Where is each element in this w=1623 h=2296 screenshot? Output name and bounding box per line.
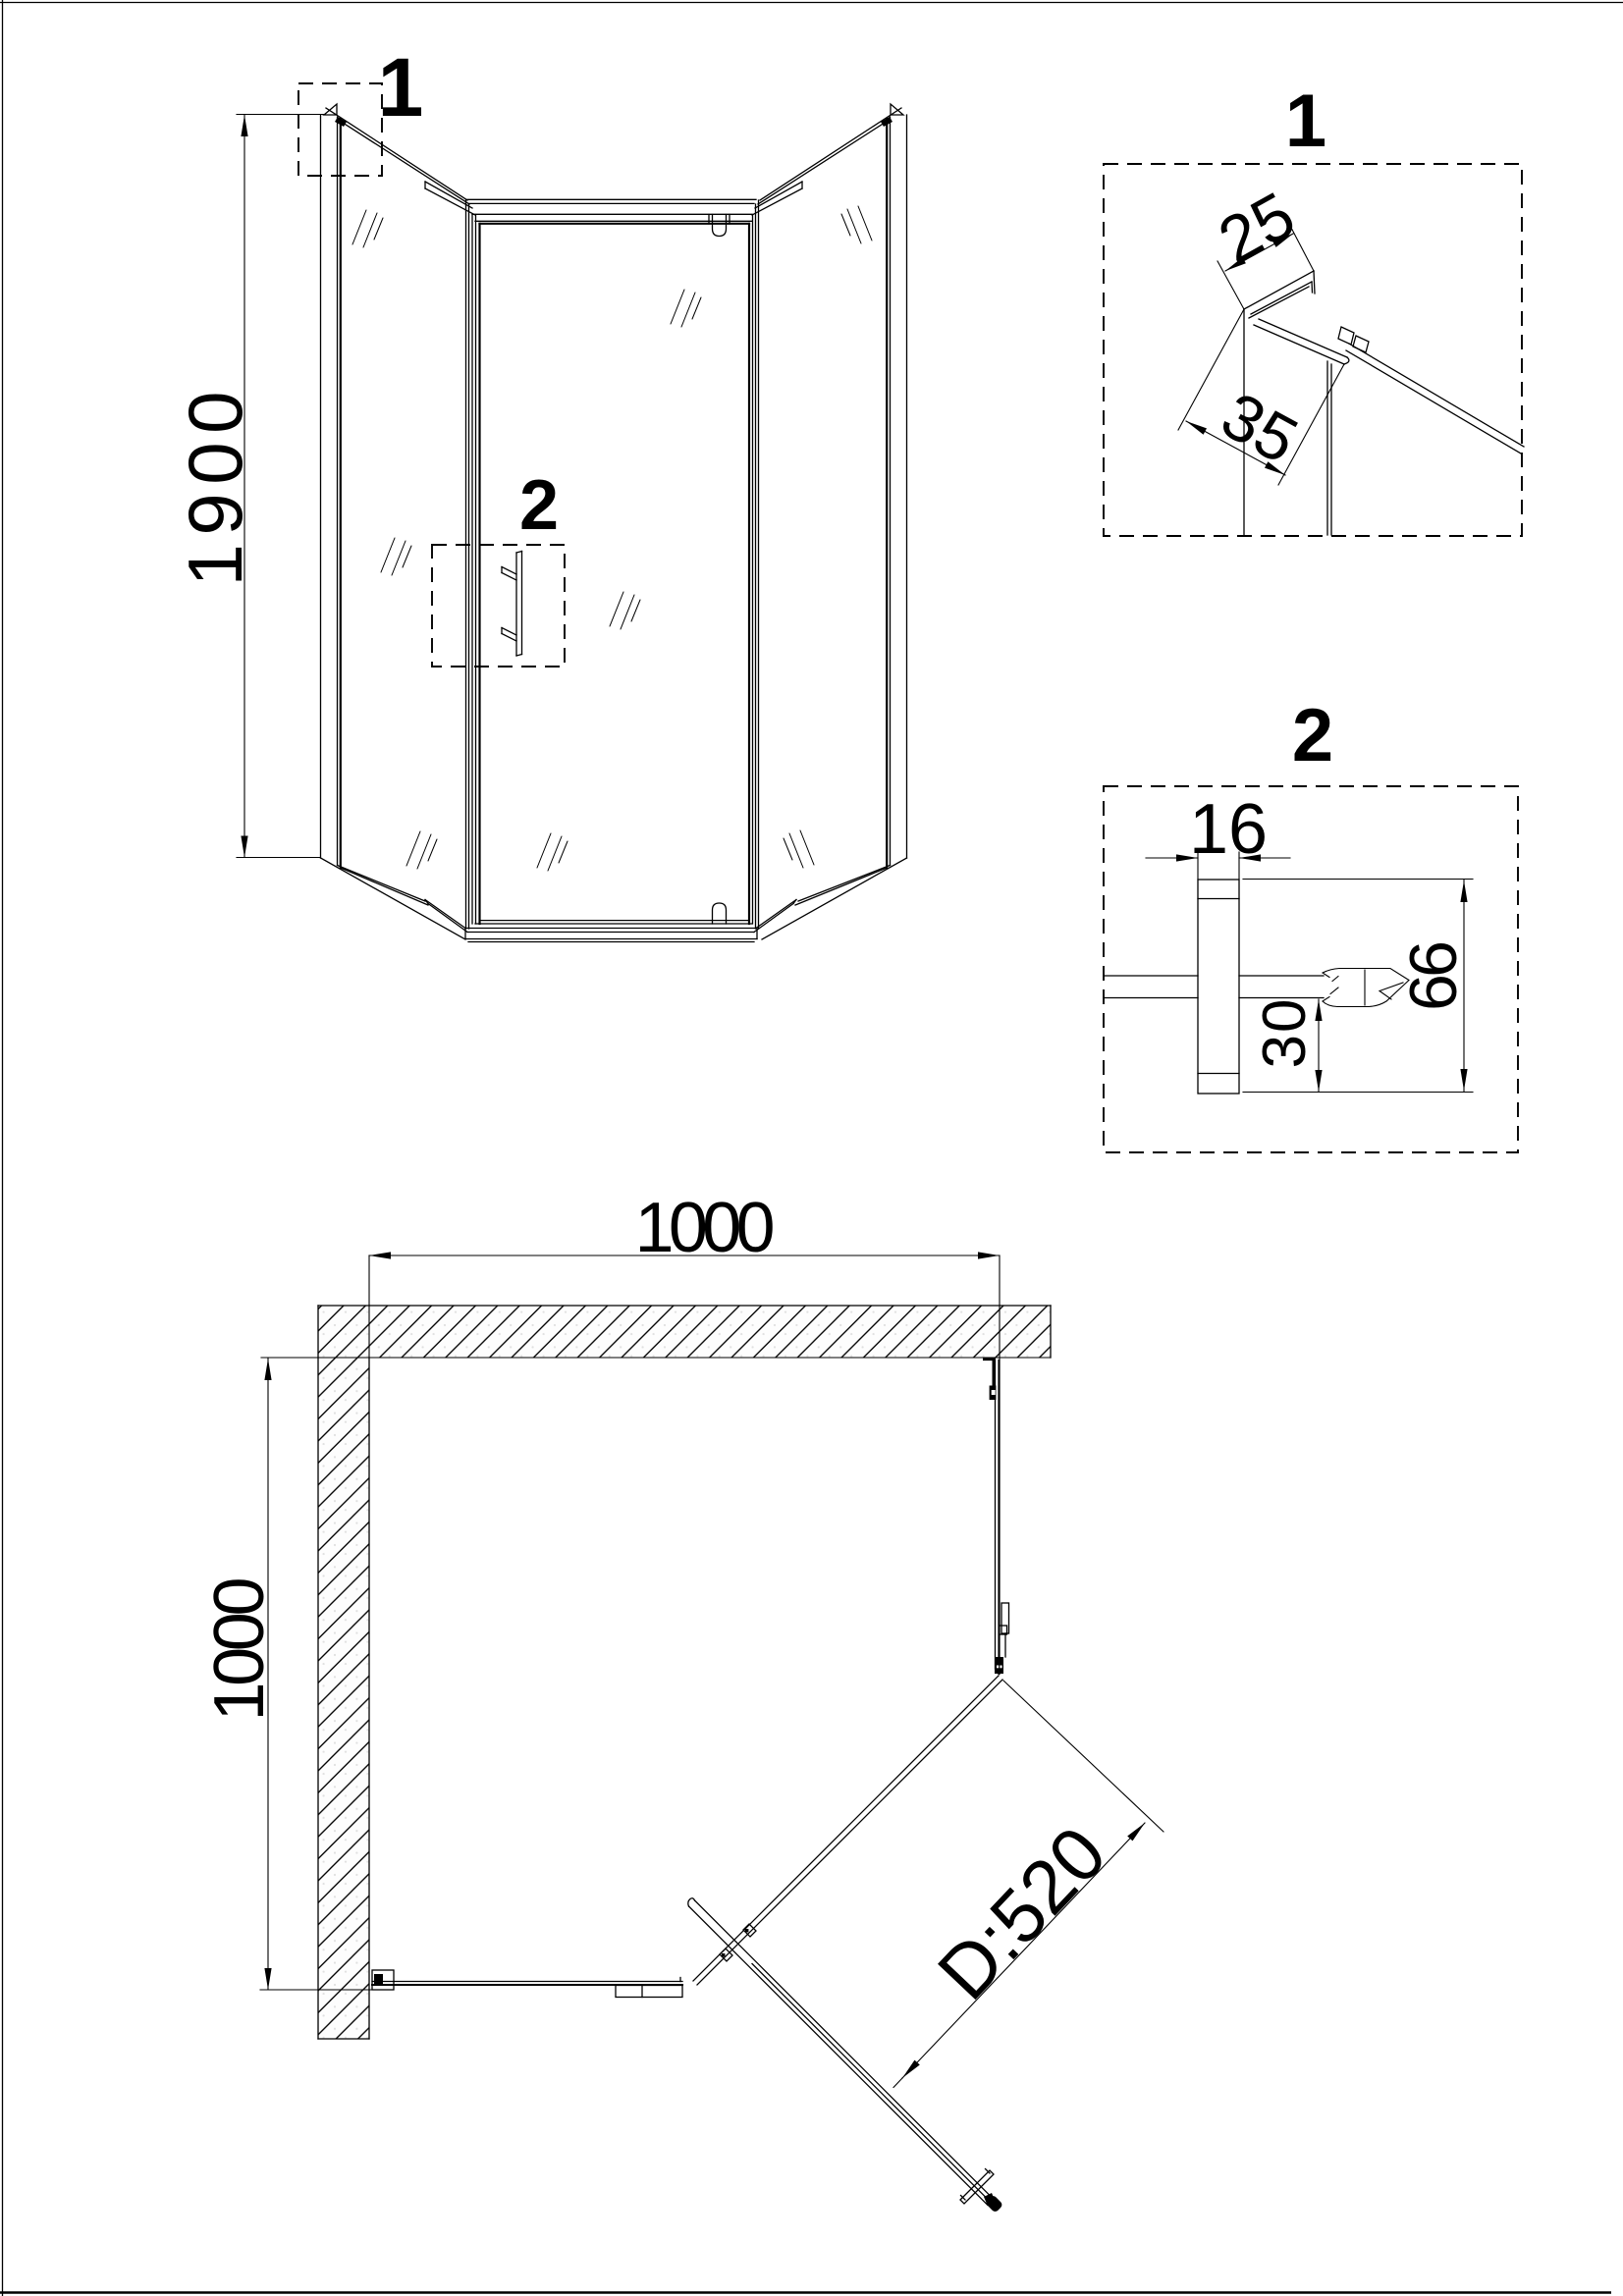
svg-text:2: 2 xyxy=(1292,694,1333,777)
svg-text:1: 1 xyxy=(378,41,424,133)
svg-text:16: 16 xyxy=(1189,790,1268,869)
svg-text:2: 2 xyxy=(519,466,559,545)
svg-text:1000: 1000 xyxy=(200,1577,279,1722)
svg-text:1000: 1000 xyxy=(635,1189,776,1267)
svg-text:1: 1 xyxy=(1285,80,1326,163)
svg-text:66: 66 xyxy=(1396,940,1471,1011)
